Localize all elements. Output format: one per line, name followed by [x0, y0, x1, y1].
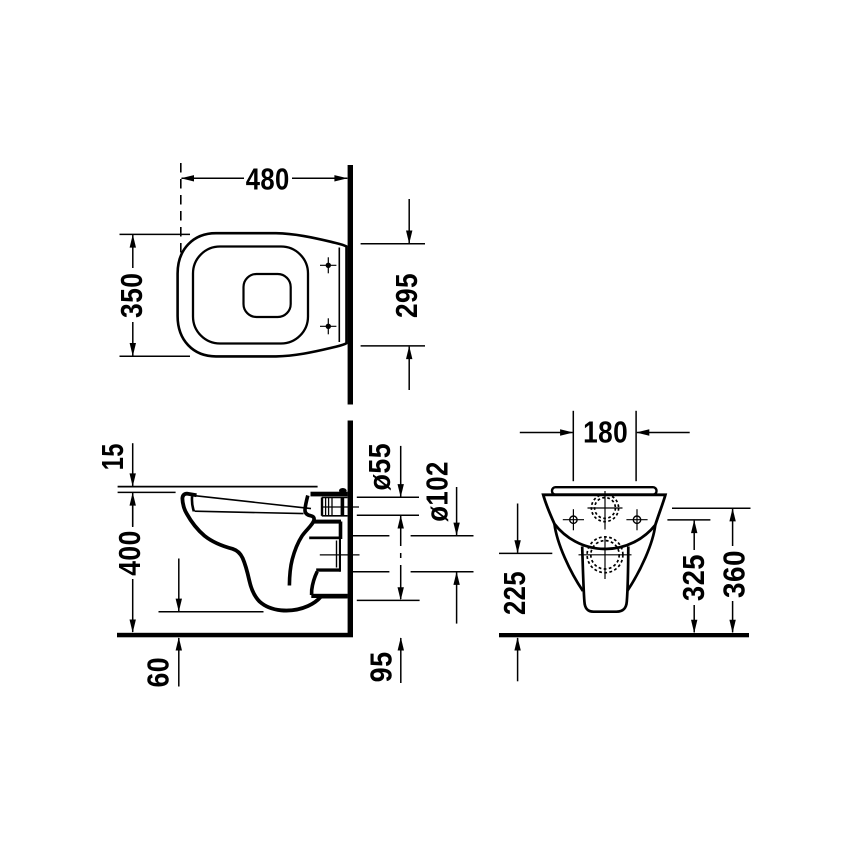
svg-text:180: 180 [583, 415, 628, 450]
svg-text:225: 225 [497, 571, 532, 615]
svg-text:400: 400 [112, 530, 147, 576]
svg-text:295: 295 [389, 273, 424, 318]
svg-text:325: 325 [676, 554, 711, 601]
svg-text:350: 350 [114, 273, 149, 319]
svg-text:60: 60 [141, 657, 176, 688]
svg-text:ø55: ø55 [362, 443, 397, 491]
svg-text:480: 480 [246, 162, 290, 197]
svg-text:15: 15 [95, 443, 130, 470]
svg-text:ø102: ø102 [420, 461, 455, 522]
svg-text:95: 95 [364, 651, 399, 682]
svg-text:360: 360 [717, 550, 752, 598]
